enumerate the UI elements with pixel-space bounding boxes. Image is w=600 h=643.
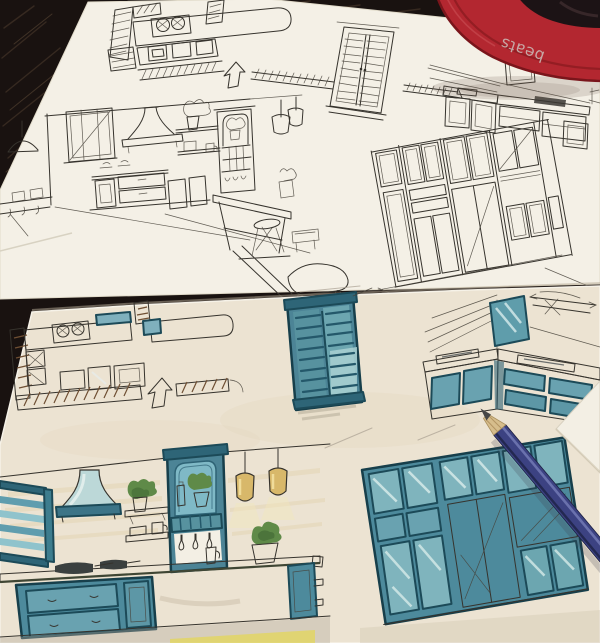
corner-wall-window bbox=[490, 296, 529, 346]
scene: beats bbox=[0, 0, 600, 643]
photo-of-kitchen-sketches: beats bbox=[0, 0, 600, 643]
counter-support-colored bbox=[288, 563, 317, 619]
hutch-colored bbox=[163, 444, 228, 572]
